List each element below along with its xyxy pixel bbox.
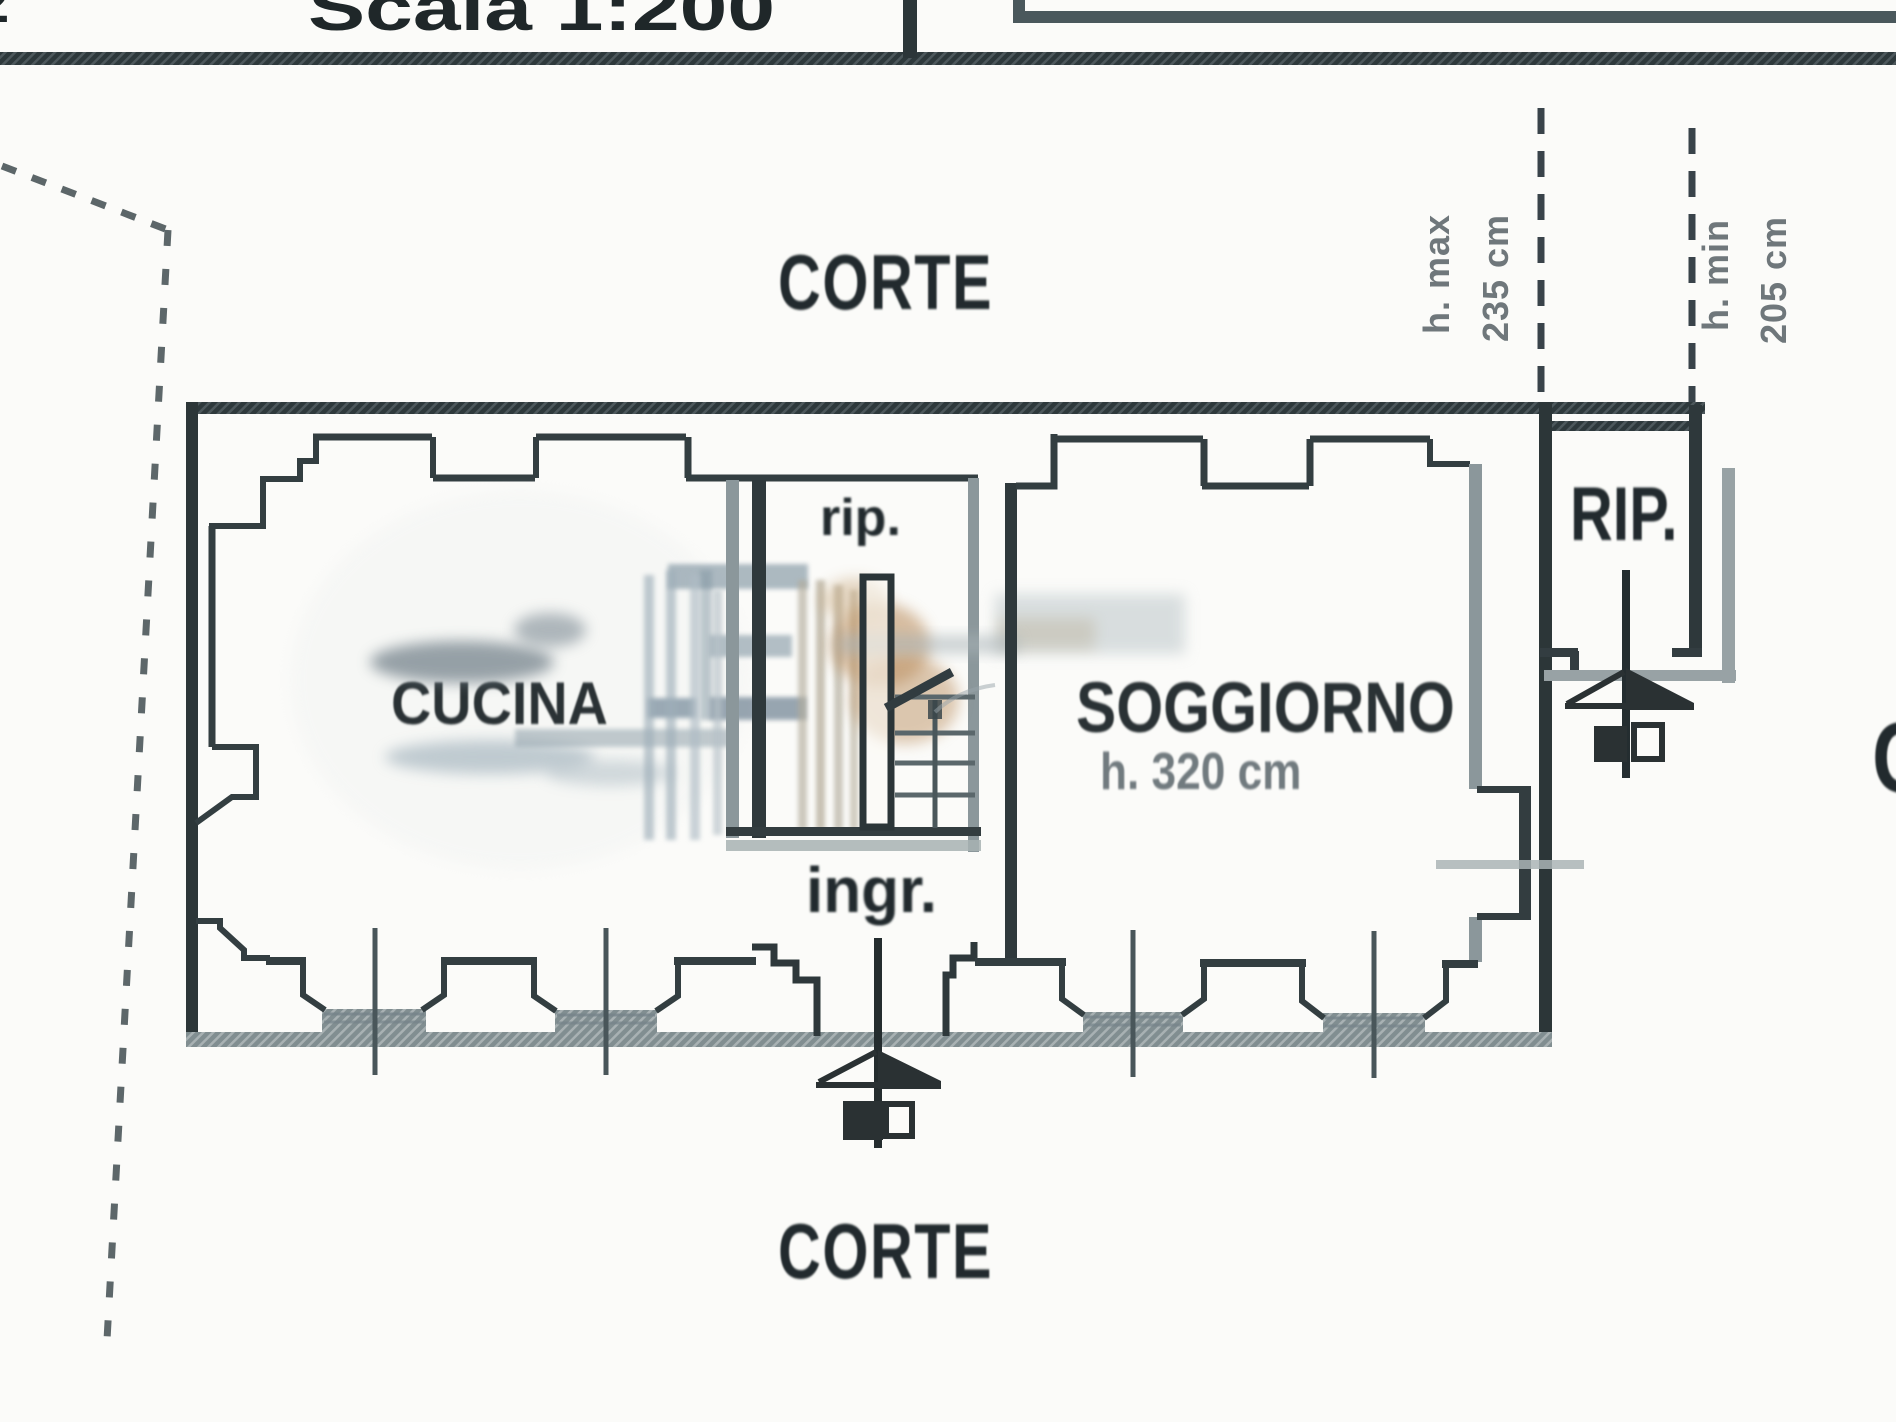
svg-text:RIP.: RIP. [1570, 472, 1678, 557]
svg-text:2: 2 [0, 0, 9, 34]
svg-text:CORTE: CORTE [778, 1207, 993, 1295]
svg-text:CORTE: CORTE [778, 238, 993, 326]
svg-text:ingr.: ingr. [806, 855, 937, 926]
svg-text:SOGGIORNO: SOGGIORNO [1076, 667, 1455, 747]
svg-text:235 cm: 235 cm [1475, 214, 1516, 342]
svg-text:205 cm: 205 cm [1753, 216, 1794, 344]
svg-text:h. 320 cm: h. 320 cm [1100, 743, 1301, 801]
svg-text:Scala 1:200: Scala 1:200 [308, 0, 775, 44]
svg-text:rip.: rip. [820, 489, 901, 547]
svg-text:C: C [1872, 703, 1896, 815]
svg-text:h. min: h. min [1695, 219, 1736, 331]
svg-text:h. max: h. max [1416, 214, 1457, 334]
